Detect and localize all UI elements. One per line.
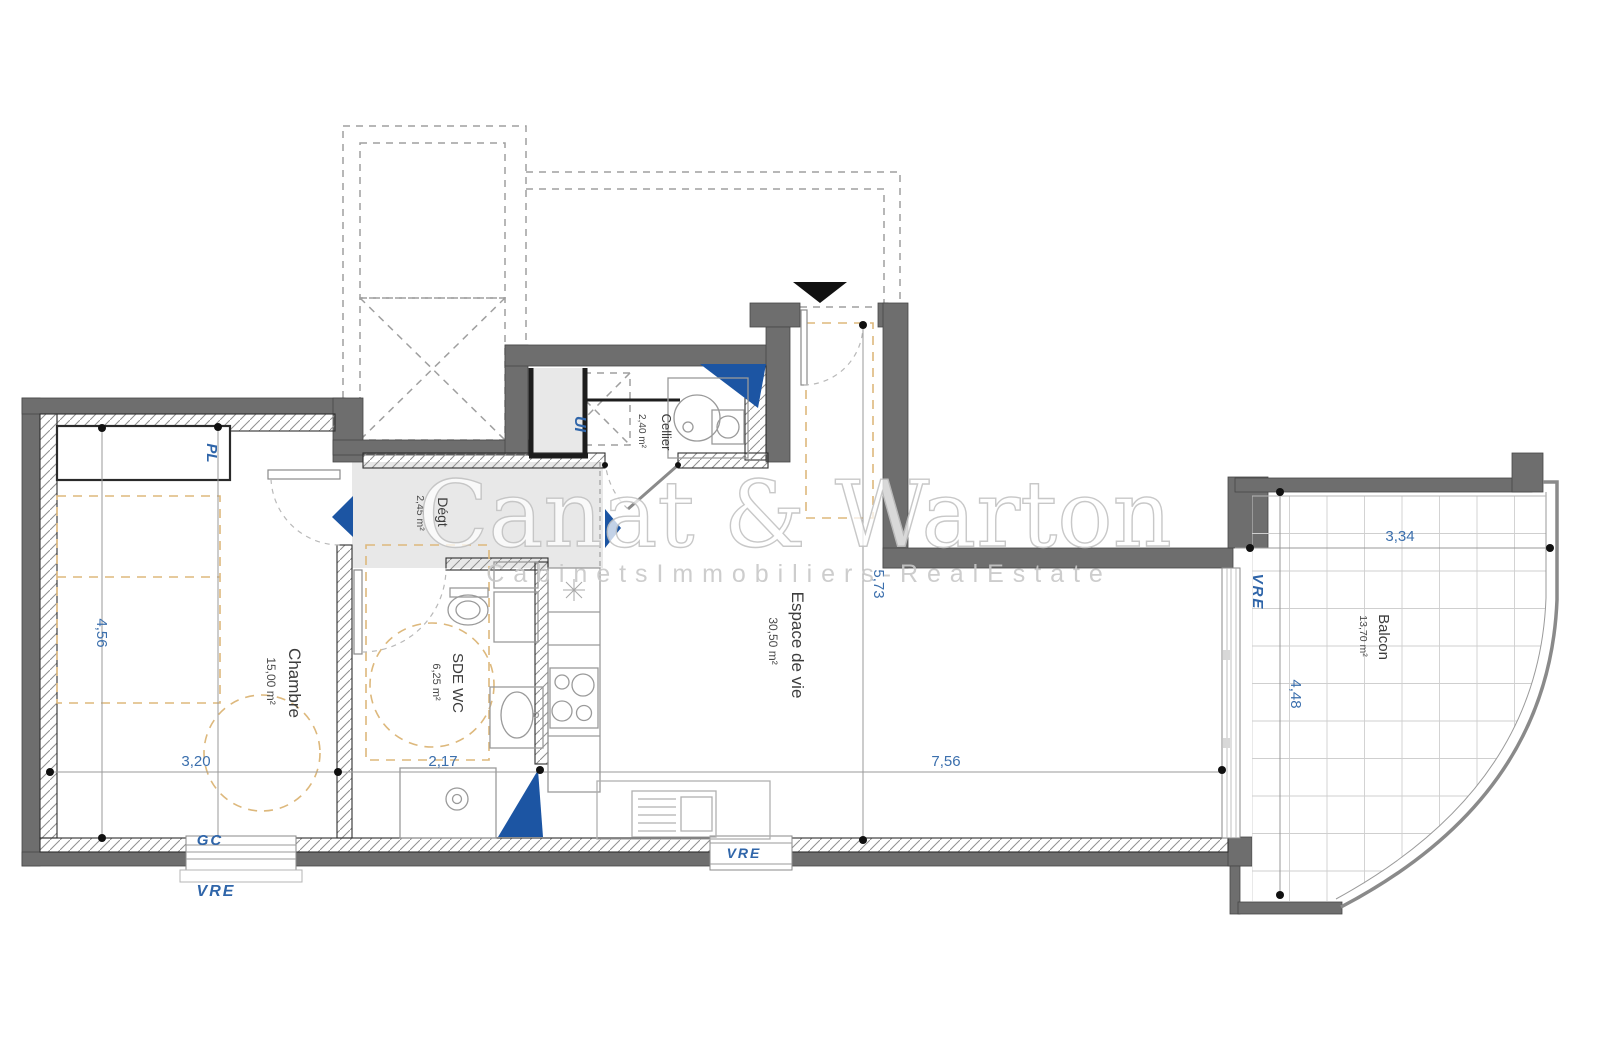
door-direction-wedge-icon (332, 496, 353, 537)
hatch-partition-chambre (337, 545, 352, 838)
wall-balcony-bottom-rail (1238, 902, 1342, 914)
watermark-subtitle: C a b i n e t s I m m o b i l i e r s - … (486, 560, 1104, 588)
door-swing-arc (362, 568, 446, 652)
balcony-rail-outer (1341, 482, 1557, 907)
tv-unit (597, 781, 770, 839)
watermark-brand: Canat & Warton (418, 461, 1172, 568)
cellier-label: Cellier (659, 414, 674, 452)
shaft-cross (360, 298, 505, 440)
sde-wc-label: SDE WC (449, 653, 466, 713)
shaft-outer-outline (343, 126, 526, 443)
sde-shelf (494, 592, 538, 642)
door-swing-arc (271, 479, 340, 545)
balcon-label: Balcon (1375, 614, 1392, 660)
vre-right-label: VRE (1249, 574, 1266, 611)
window-mullion (1223, 738, 1230, 748)
bed-hint (57, 496, 220, 703)
wall-kitchen-top (505, 345, 767, 366)
shaft-upper-outline (360, 143, 505, 298)
cellier-area: 2,40 m² (636, 414, 647, 449)
placard-label: PL (203, 443, 220, 462)
door-leaf (354, 570, 362, 654)
living-area: 30,50 m² (766, 617, 780, 664)
wall-left (22, 398, 40, 866)
vre-left-label: VRE (197, 883, 236, 900)
dim-3-34: 3,34 (1385, 528, 1414, 545)
gc-label: GC (197, 832, 224, 849)
cellier-wedge-icon (700, 364, 766, 408)
wall-bottom-right-block (1228, 837, 1252, 866)
kitchen-counter (548, 568, 600, 792)
dim-4-56: 4,56 (93, 618, 110, 647)
sde-zone-hint (366, 545, 489, 760)
door-entrance (793, 282, 863, 385)
shower-wedge-icon (498, 770, 543, 837)
cooktop-icon (550, 668, 598, 728)
dim-7-56: 7,56 (931, 753, 960, 770)
dim-4-48: 4,48 (1287, 679, 1304, 708)
floor-plan-page: Chambre 15,00 m² SDE WC 6,25 m² Dégt 2,4… (0, 0, 1600, 1052)
door-chambre (268, 470, 353, 545)
window-living-balcony (1222, 568, 1240, 838)
wall-entry-cellier (766, 327, 790, 462)
entrance-arrow-icon (793, 282, 847, 303)
watermark: Canat & Warton C a b i n e t s I m m o b… (418, 461, 1172, 588)
wall-balcony-top-right-block (1512, 453, 1543, 492)
vre-center-label: VRE (727, 845, 762, 861)
toilet-icon (448, 588, 488, 625)
chambre-label: Chambre (285, 648, 304, 718)
chambre-area: 15,00 m² (264, 657, 278, 704)
dim-2-17: 2,17 (428, 753, 457, 770)
window-sill (180, 870, 302, 882)
window-mullion (1223, 650, 1230, 660)
door-leaf (801, 310, 807, 385)
door-sde (354, 568, 446, 654)
dim-3-20: 3,20 (181, 753, 210, 770)
door-swing-arc (804, 325, 863, 385)
living-label: Espace de vie (788, 592, 807, 699)
door-leaf (268, 470, 340, 479)
wall-entry-jamb-left (750, 303, 800, 327)
ui-closet-floor (532, 368, 585, 456)
sde-wc-area: 6,25 m² (430, 663, 442, 701)
balcon-area: 13,70 m² (1357, 615, 1369, 657)
wall-chambre-top (22, 398, 345, 414)
shower-icon (400, 768, 496, 838)
floor-plan-drawing: Chambre 15,00 m² SDE WC 6,25 m² Dégt 2,4… (0, 0, 1600, 1052)
ui-label: UI (571, 416, 588, 433)
